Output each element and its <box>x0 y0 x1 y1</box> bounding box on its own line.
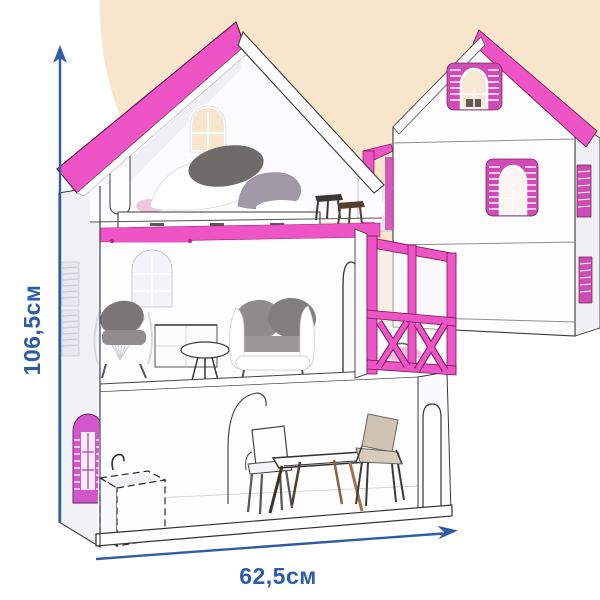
armchair-seat-cushion <box>102 330 146 345</box>
back-gable-shuttered-window <box>447 63 502 110</box>
product-dimension-image: 106,5см 62,5см <box>0 0 600 600</box>
middle-arched-window <box>132 250 172 307</box>
gap-pink-strip <box>385 157 394 230</box>
side-louver-window-lower <box>62 310 79 356</box>
side-louver-window-upper <box>62 262 79 306</box>
bottom-arch-doorway <box>423 404 441 515</box>
back-mid-shuttered-window <box>486 159 538 216</box>
back-house-side-wall <box>575 122 600 336</box>
sofa-seat <box>238 336 306 352</box>
left-side-wall <box>59 186 103 547</box>
height-label: 106,5см <box>19 285 45 376</box>
attic-arched-window <box>190 106 226 152</box>
width-label: 62,5см <box>239 563 317 589</box>
sofa <box>229 296 318 380</box>
right-wall-pillar <box>355 229 367 378</box>
balcony <box>367 236 456 375</box>
bottom-floor <box>96 372 452 546</box>
sofa-base <box>236 356 310 370</box>
dollhouse-scene: 106,5см 62,5см <box>0 0 600 600</box>
